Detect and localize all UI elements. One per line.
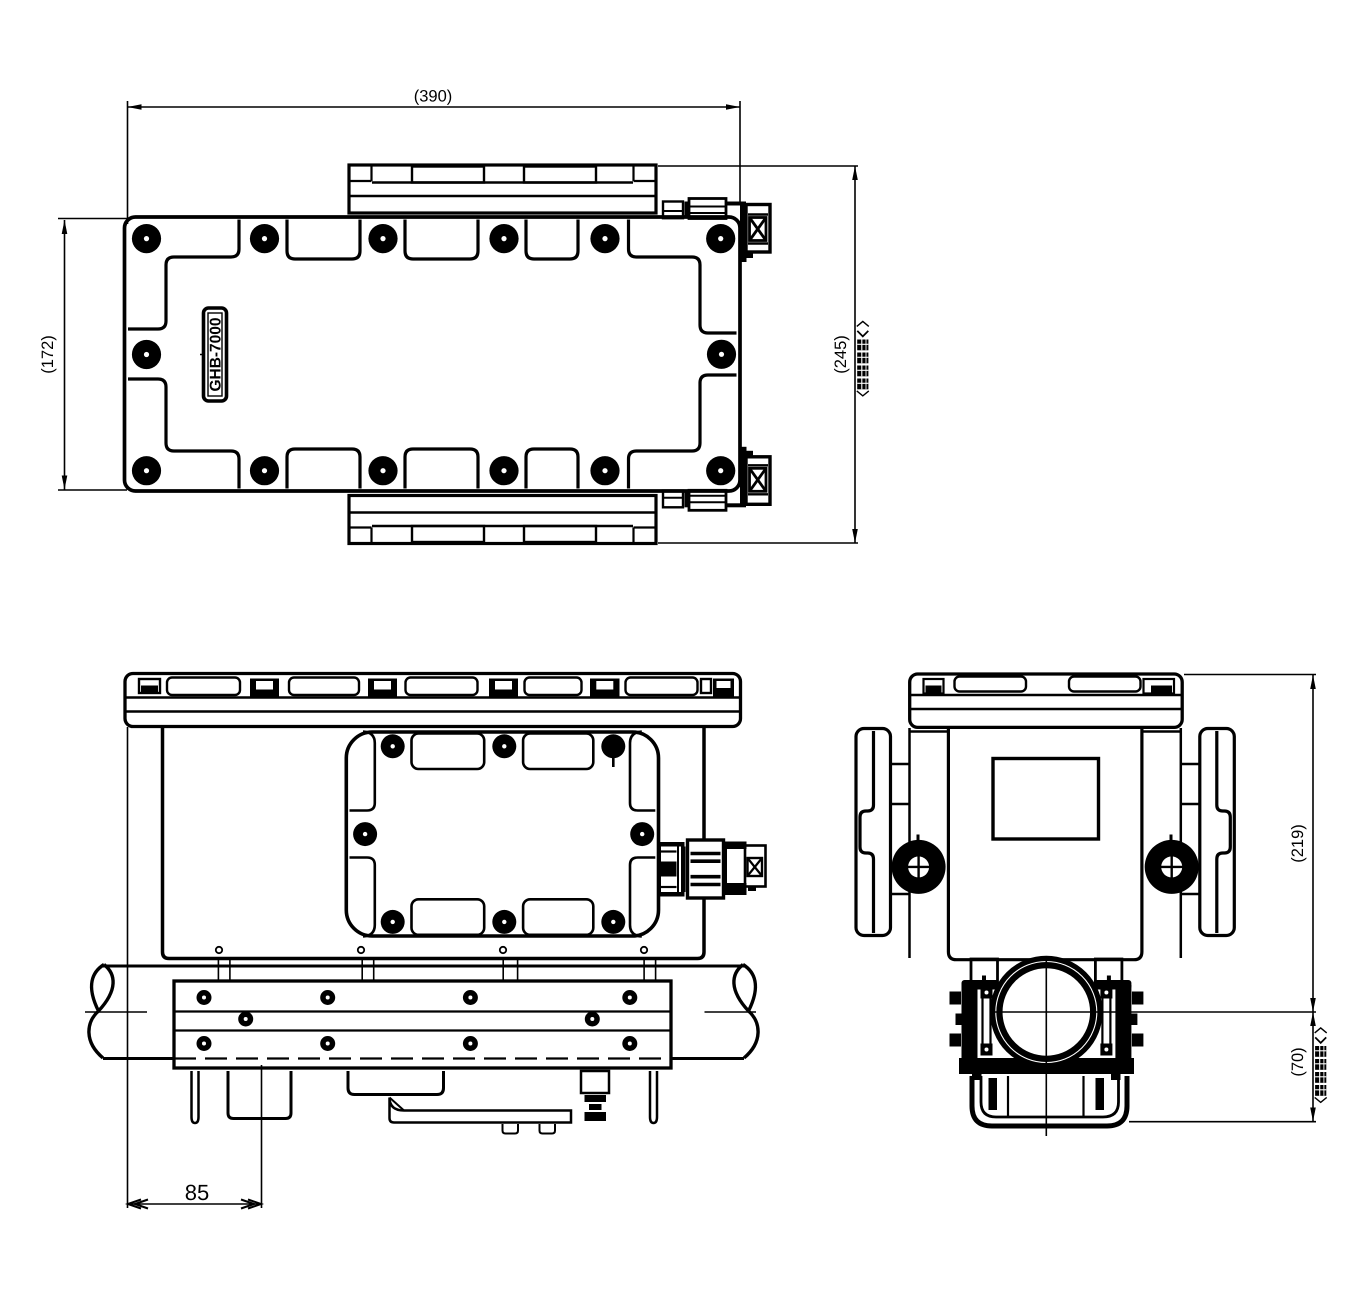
svg-text:(172): (172) [39, 335, 57, 374]
svg-text:GHB-7000: GHB-7000 [208, 317, 225, 391]
svg-text:85: 85 [185, 1180, 209, 1205]
svg-text:(70): (70) [1289, 1047, 1307, 1076]
svg-text:(390): (390) [414, 88, 453, 106]
svg-text:(245): (245) [832, 335, 850, 374]
svg-text:(219): (219) [1289, 824, 1307, 863]
